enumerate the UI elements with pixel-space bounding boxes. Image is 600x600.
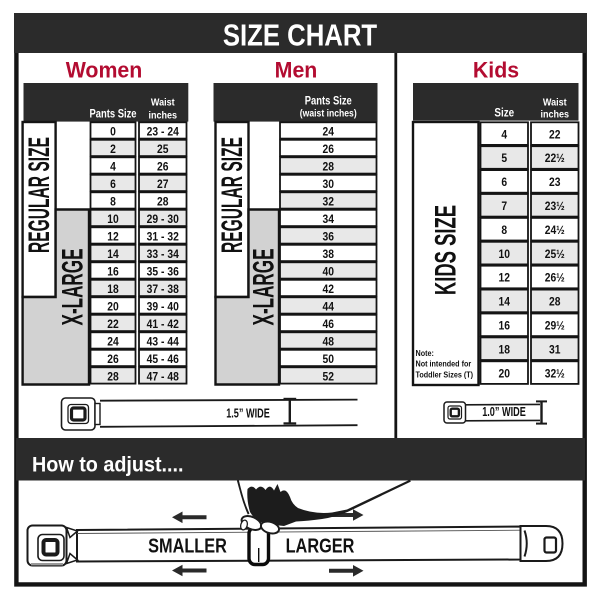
- svg-text:How to adjust....: How to adjust....: [32, 453, 184, 477]
- svg-text:25½: 25½: [545, 248, 565, 261]
- svg-text:30: 30: [323, 178, 334, 191]
- svg-text:45 - 46: 45 - 46: [147, 353, 179, 366]
- svg-text:7: 7: [501, 200, 507, 213]
- svg-text:23½: 23½: [545, 200, 565, 213]
- svg-text:26: 26: [107, 353, 118, 366]
- svg-text:Pants Size: Pants Size: [89, 108, 136, 121]
- svg-text:Toddler Sizes (T): Toddler Sizes (T): [416, 370, 474, 380]
- svg-text:12: 12: [107, 231, 118, 244]
- svg-text:4: 4: [501, 129, 507, 142]
- svg-text:10: 10: [107, 213, 118, 226]
- svg-text:18: 18: [499, 344, 510, 357]
- svg-text:SMALLER: SMALLER: [148, 534, 227, 557]
- svg-text:inches: inches: [540, 109, 569, 121]
- svg-text:47 - 48: 47 - 48: [147, 371, 179, 384]
- svg-text:39 - 40: 39 - 40: [147, 301, 179, 314]
- svg-text:Men: Men: [275, 57, 318, 82]
- svg-text:16: 16: [499, 320, 510, 333]
- svg-text:16: 16: [107, 266, 118, 279]
- svg-text:32½: 32½: [545, 368, 565, 381]
- svg-text:REGULAR SIZE: REGULAR SIZE: [23, 137, 57, 253]
- svg-text:44: 44: [323, 301, 335, 314]
- svg-text:34: 34: [323, 213, 335, 226]
- svg-text:Waist: Waist: [543, 97, 567, 109]
- svg-text:KIDS SIZE: KIDS SIZE: [429, 205, 463, 295]
- svg-text:X-LARGE: X-LARGE: [248, 249, 281, 326]
- svg-text:2: 2: [110, 143, 116, 156]
- svg-text:37 - 38: 37 - 38: [147, 283, 179, 296]
- svg-text:32: 32: [323, 196, 334, 209]
- svg-text:28: 28: [323, 161, 334, 174]
- svg-text:8: 8: [501, 224, 507, 237]
- svg-text:31 - 32: 31 - 32: [147, 231, 179, 244]
- svg-text:(waist inches): (waist inches): [300, 108, 357, 120]
- svg-text:REGULAR SIZE: REGULAR SIZE: [216, 137, 250, 253]
- svg-text:38: 38: [323, 248, 334, 261]
- svg-text:6: 6: [501, 176, 507, 189]
- svg-text:Kids: Kids: [473, 57, 519, 82]
- svg-text:Waist: Waist: [151, 97, 175, 109]
- svg-text:52: 52: [323, 371, 334, 384]
- svg-text:X-LARGE: X-LARGE: [57, 249, 90, 326]
- svg-text:18: 18: [107, 283, 118, 296]
- svg-text:27: 27: [157, 178, 168, 191]
- svg-text:31: 31: [549, 344, 560, 357]
- svg-text:26: 26: [323, 143, 334, 156]
- svg-text:40: 40: [323, 266, 334, 279]
- svg-text:36: 36: [323, 231, 334, 244]
- svg-text:20: 20: [107, 301, 118, 314]
- svg-text:35 - 36: 35 - 36: [147, 266, 179, 279]
- svg-text:22: 22: [107, 318, 118, 331]
- svg-text:Not intended for: Not intended for: [416, 359, 472, 369]
- svg-text:8: 8: [110, 196, 116, 209]
- svg-text:22½: 22½: [545, 153, 565, 166]
- svg-text:26: 26: [157, 161, 168, 174]
- svg-text:1.0” WIDE: 1.0” WIDE: [482, 406, 526, 420]
- svg-text:Pants Size: Pants Size: [305, 95, 352, 108]
- svg-text:22: 22: [549, 129, 560, 142]
- svg-text:6: 6: [110, 178, 116, 191]
- svg-text:42: 42: [323, 283, 334, 296]
- svg-text:28: 28: [157, 196, 168, 209]
- svg-text:33 - 34: 33 - 34: [147, 248, 180, 261]
- svg-text:Women: Women: [66, 57, 143, 82]
- svg-text:28: 28: [107, 371, 118, 384]
- svg-text:48: 48: [323, 336, 334, 349]
- svg-text:26½: 26½: [545, 272, 565, 285]
- svg-text:12: 12: [499, 272, 510, 285]
- svg-text:28: 28: [549, 296, 560, 309]
- svg-text:24: 24: [107, 336, 119, 349]
- svg-text:14: 14: [107, 248, 119, 261]
- svg-text:41 - 42: 41 - 42: [147, 318, 179, 331]
- svg-text:29 - 30: 29 - 30: [147, 213, 179, 226]
- svg-text:4: 4: [110, 161, 116, 174]
- svg-text:23: 23: [549, 176, 560, 189]
- svg-text:20: 20: [499, 368, 510, 381]
- svg-text:25: 25: [157, 143, 168, 156]
- svg-text:46: 46: [323, 318, 334, 331]
- svg-text:43 - 44: 43 - 44: [147, 336, 180, 349]
- svg-text:5: 5: [501, 153, 507, 166]
- svg-text:1.5” WIDE: 1.5” WIDE: [226, 407, 270, 421]
- svg-text:Note:: Note:: [416, 348, 434, 358]
- svg-text:inches: inches: [148, 110, 177, 122]
- svg-text:LARGER: LARGER: [286, 534, 355, 557]
- svg-text:SIZE CHART: SIZE CHART: [223, 18, 378, 53]
- svg-text:14: 14: [499, 296, 511, 309]
- svg-text:50: 50: [323, 353, 334, 366]
- svg-text:0: 0: [110, 126, 116, 139]
- svg-text:10: 10: [499, 248, 510, 261]
- svg-text:23 - 24: 23 - 24: [147, 126, 180, 139]
- svg-text:24: 24: [323, 126, 335, 139]
- svg-text:24½: 24½: [545, 224, 565, 237]
- svg-text:29½: 29½: [545, 320, 565, 333]
- svg-text:Size: Size: [494, 107, 514, 120]
